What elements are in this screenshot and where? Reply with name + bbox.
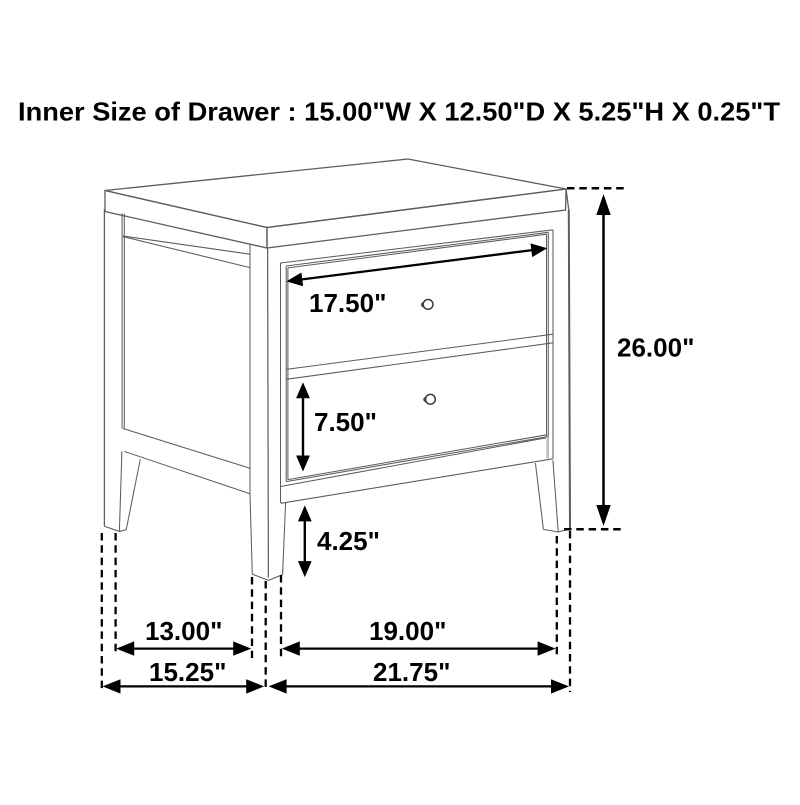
svg-text:21.75": 21.75" [373, 657, 450, 687]
svg-text:19.00": 19.00" [369, 616, 446, 646]
svg-text:7.50": 7.50" [314, 407, 377, 437]
svg-text:Inner Size of Drawer : 15.00"W: Inner Size of Drawer : 15.00"W X 12.50"D… [18, 97, 780, 127]
svg-text:26.00": 26.00" [617, 333, 694, 363]
svg-text:15.25": 15.25" [149, 657, 226, 687]
svg-text:4.25": 4.25" [317, 526, 380, 556]
svg-text:17.50": 17.50" [309, 288, 386, 318]
svg-text:13.00": 13.00" [145, 616, 222, 646]
